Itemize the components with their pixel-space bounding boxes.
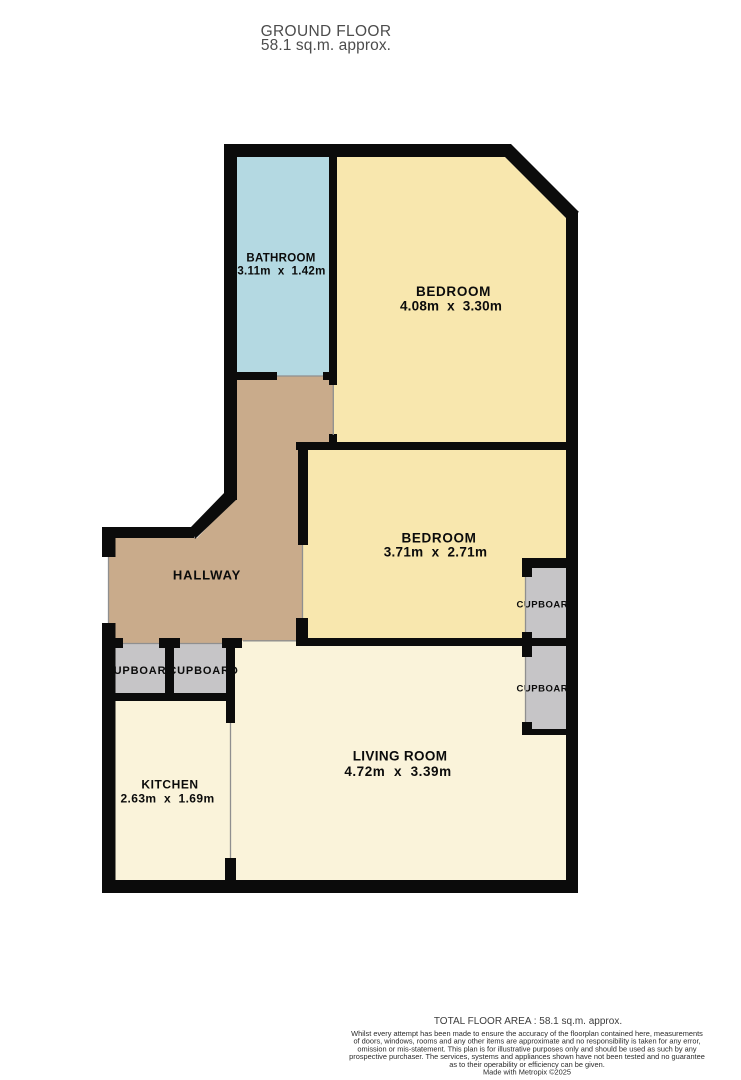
svg-text:4.72m x 3.39m: 4.72m x 3.39m [344,764,451,779]
svg-text:BEDROOM: BEDROOM [401,531,476,546]
svg-text:4.08m x 3.30m: 4.08m x 3.30m [400,299,502,314]
svg-text:KITCHEN: KITCHEN [141,778,198,792]
svg-text:TOTAL FLOOR AREA : 58.1 sq.m.: TOTAL FLOOR AREA : 58.1 sq.m. approx. [434,1016,622,1027]
svg-text:3.71m x 2.71m: 3.71m x 2.71m [384,545,488,560]
svg-text:Made with Metropix ©2025: Made with Metropix ©2025 [483,1068,571,1077]
svg-text:LIVING ROOM: LIVING ROOM [353,749,448,764]
svg-text:3.11m x 1.42m: 3.11m x 1.42m [237,265,325,277]
svg-text:2.63m x 1.69m: 2.63m x 1.69m [120,792,214,806]
svg-text:HALLWAY: HALLWAY [173,568,241,583]
svg-text:58.1 sq.m. approx.: 58.1 sq.m. approx. [261,37,391,54]
svg-text:BEDROOM: BEDROOM [416,284,491,299]
svg-text:BATHROOM: BATHROOM [246,253,315,265]
